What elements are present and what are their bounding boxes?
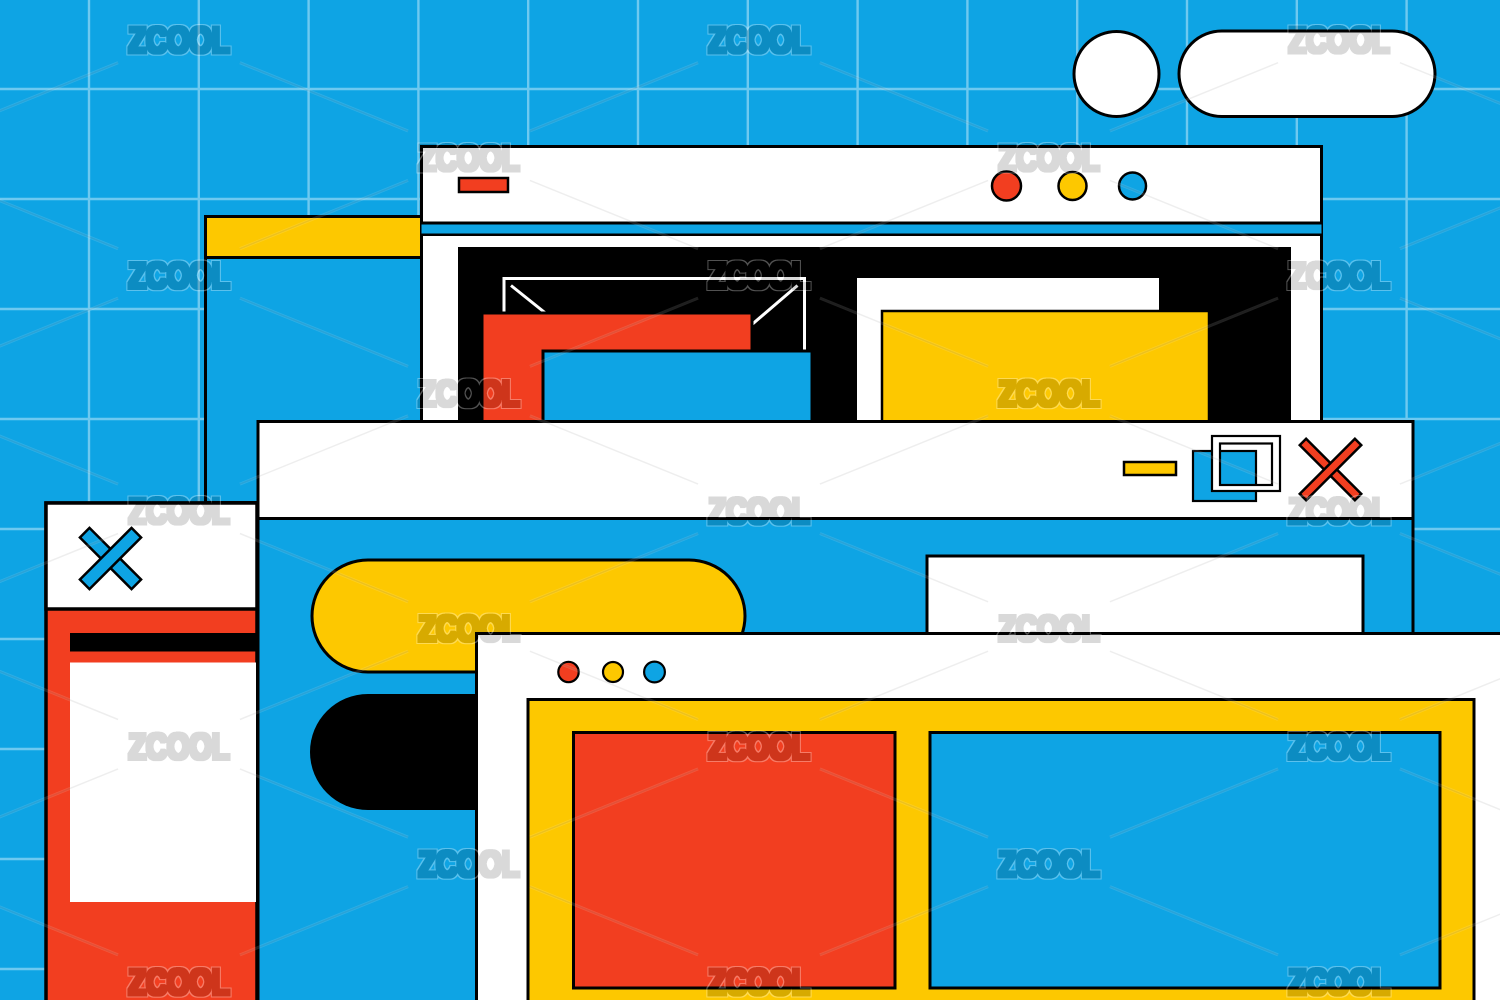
svg-text:ZCOOL: ZCOOL xyxy=(709,726,810,767)
svg-text:ZCOOL: ZCOOL xyxy=(709,961,810,1000)
svg-text:ZCOOL: ZCOOL xyxy=(129,491,230,532)
svg-text:ZCOOL: ZCOOL xyxy=(129,961,230,1000)
svg-text:ZCOOL: ZCOOL xyxy=(709,20,810,61)
svg-text:ZCOOL: ZCOOL xyxy=(709,255,810,296)
svg-text:ZCOOL: ZCOOL xyxy=(129,726,230,767)
svg-text:ZCOOL: ZCOOL xyxy=(1289,491,1390,532)
svg-text:ZCOOL: ZCOOL xyxy=(419,137,520,178)
svg-text:ZCOOL: ZCOOL xyxy=(709,491,810,532)
svg-text:ZCOOL: ZCOOL xyxy=(999,137,1100,178)
svg-text:ZCOOL: ZCOOL xyxy=(999,608,1100,649)
svg-text:ZCOOL: ZCOOL xyxy=(419,844,520,885)
svg-text:ZCOOL: ZCOOL xyxy=(129,20,230,61)
svg-text:ZCOOL: ZCOOL xyxy=(1289,726,1390,767)
svg-text:ZCOOL: ZCOOL xyxy=(999,844,1100,885)
svg-text:ZCOOL: ZCOOL xyxy=(419,373,520,414)
svg-text:ZCOOL: ZCOOL xyxy=(129,255,230,296)
svg-text:ZCOOL: ZCOOL xyxy=(999,373,1100,414)
svg-text:ZCOOL: ZCOOL xyxy=(419,608,520,649)
svg-text:ZCOOL: ZCOOL xyxy=(1289,20,1390,61)
svg-text:ZCOOL: ZCOOL xyxy=(1289,255,1390,296)
svg-text:ZCOOL: ZCOOL xyxy=(1289,961,1390,1000)
